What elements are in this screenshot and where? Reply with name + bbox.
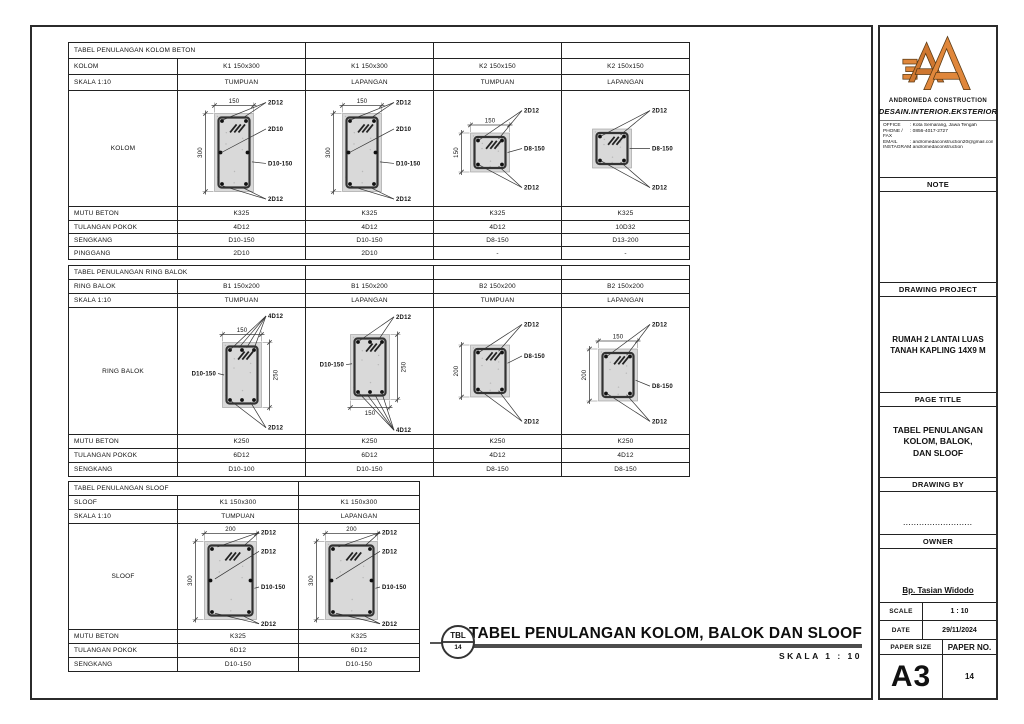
- svg-text:2D12: 2D12: [652, 109, 668, 115]
- svg-text:2D12: 2D12: [382, 549, 398, 555]
- contact-value: : andromedaconstruction: [910, 145, 993, 151]
- section-diagram: 2002D12D8-1502D12: [434, 308, 561, 434]
- svg-text:150: 150: [237, 328, 248, 334]
- table-cell: K325: [177, 630, 298, 643]
- table-cell: B1 150x200: [177, 280, 305, 293]
- table-cell: [305, 43, 433, 58]
- table-cell: TUMPUAN: [177, 510, 298, 523]
- table-header-row: SKALA 1:10 TUMPUAN LAPANGAN TUMPUAN LAPA…: [69, 74, 689, 90]
- table-cell: K325: [305, 207, 433, 220]
- badge-code: TBL: [443, 627, 473, 641]
- section-diagram: 2501502D12D10-1504D12: [306, 308, 433, 434]
- svg-text:2D10: 2D10: [396, 127, 412, 133]
- svg-text:2D12: 2D12: [396, 197, 412, 203]
- table-cell: K325: [561, 207, 689, 220]
- contact-label: INSTAGRAM: [883, 145, 910, 151]
- svg-text:D10-150: D10-150: [320, 363, 345, 369]
- svg-text:150: 150: [613, 335, 624, 341]
- table-title-row: TABEL PENULANGAN RING BALOK: [69, 266, 689, 279]
- svg-text:250: 250: [402, 361, 408, 372]
- spec-row: TULANGAN POKOK 6D12 6D12 4D12 4D12: [69, 448, 689, 462]
- project-name: RUMAH 2 LANTAI LUAS TANAH KAPLING 14X9 M: [880, 297, 996, 392]
- note-body: [880, 192, 996, 282]
- table-cell: TUMPUAN: [433, 294, 561, 307]
- table-cell: K1 150x300: [177, 59, 305, 74]
- table-cell: -: [561, 247, 689, 259]
- svg-text:150: 150: [357, 99, 368, 105]
- owner-name: Bp. Tasian Widodo: [902, 586, 973, 595]
- title-underline-bar: [468, 644, 862, 648]
- svg-text:2D12: 2D12: [268, 426, 284, 432]
- svg-text:300: 300: [309, 575, 315, 586]
- page-title-line: KOLOM, BALOK,: [904, 436, 973, 448]
- table-cell: TUMPUAN: [177, 75, 305, 90]
- table-cell: D10-150: [305, 234, 433, 246]
- row-label: KOLOM: [69, 59, 177, 74]
- diagram-row: KOLOM 1503002D122D10D10-1502D12 1503002D…: [69, 90, 689, 206]
- table-cell: 1502504D12D10-1502D12: [177, 308, 305, 434]
- brand-name: ANDROMEDA CONSTRUCTION: [889, 98, 987, 104]
- table-cell: 4D12: [177, 221, 305, 233]
- table-cell: D10-100: [177, 463, 305, 476]
- svg-text:2D12: 2D12: [268, 101, 284, 107]
- table-cell: 1503002D122D10D10-1502D12: [177, 91, 305, 206]
- andromeda-logo-icon: [900, 32, 976, 96]
- table-cell: K1 150x300: [177, 496, 298, 509]
- table-cell: 2D12D8-1502D12: [561, 91, 689, 206]
- spec-row: MUTU BETON K325 K325 K325 K325: [69, 206, 689, 220]
- table-cell: D8-150: [561, 463, 689, 476]
- svg-text:2D12: 2D12: [524, 322, 540, 328]
- svg-text:2D12: 2D12: [652, 419, 668, 425]
- signature-dots: ..........................: [903, 521, 972, 527]
- table-cell: 10D32: [561, 221, 689, 233]
- section-diagram: 1503002D122D10D10-1502D12: [306, 91, 433, 206]
- title-block: ANDROMEDA CONSTRUCTION DESAIN.INTERIOR.E…: [878, 25, 998, 700]
- row-label: RING BALOK: [69, 280, 177, 293]
- table-title: TABEL PENULANGAN RING BALOK: [69, 266, 305, 279]
- table-header-row: RING BALOK B1 150x200 B1 150x200 B2 150x…: [69, 279, 689, 293]
- svg-text:D10-150: D10-150: [268, 161, 293, 167]
- table-cell: K1 150x300: [305, 59, 433, 74]
- svg-text:250: 250: [274, 369, 280, 380]
- table-cell: K2 150x150: [561, 59, 689, 74]
- spec-row: SENGKANG D10-150 D10-150: [69, 657, 419, 671]
- row-label: SLOOF: [69, 524, 177, 629]
- table-cell: K250: [177, 435, 305, 448]
- project-line: TANAH KAPLING 14X9 M: [890, 345, 985, 356]
- svg-text:200: 200: [346, 527, 357, 533]
- svg-text:200: 200: [454, 365, 460, 376]
- brand-tagline: DESAIN.INTERIOR.EKSTERIOR: [879, 107, 998, 116]
- paper-size-label: PAPER SIZE: [880, 640, 942, 654]
- date-label: DATE: [880, 621, 922, 639]
- scale-row: SCALE 1 : 10: [880, 602, 996, 620]
- row-label: TULANGAN POKOK: [69, 449, 177, 462]
- drawing-project-header: DRAWING PROJECT: [880, 282, 996, 297]
- row-label: TULANGAN POKOK: [69, 644, 177, 657]
- table-cell: K325: [177, 207, 305, 220]
- row-label: RING BALOK: [69, 308, 177, 434]
- svg-text:2D12: 2D12: [261, 622, 277, 628]
- table-cell: 2003002D122D12D10-1502D12: [177, 524, 298, 629]
- row-label: PINGGANG: [69, 247, 177, 259]
- svg-text:2D10: 2D10: [268, 127, 284, 133]
- table-cell: B2 150x200: [433, 280, 561, 293]
- svg-text:150: 150: [485, 119, 496, 125]
- table-cell: D8-150: [433, 234, 561, 246]
- table-cell: LAPANGAN: [305, 75, 433, 90]
- row-label: SENGKANG: [69, 463, 177, 476]
- table-cell: [561, 43, 689, 58]
- table-header-row: SKALA 1:10 TUMPUAN LAPANGAN: [69, 509, 419, 523]
- table-sloof: TABEL PENULANGAN SLOOF SLOOF K1 150x300 …: [68, 481, 420, 672]
- table-cell: K250: [561, 435, 689, 448]
- table-kolom-beton: TABEL PENULANGAN KOLOM BETON KOLOM K1 15…: [68, 42, 690, 260]
- table-cell: 4D12: [305, 221, 433, 233]
- table-cell: D10-150: [177, 658, 298, 671]
- table-cell: 2003002D122D12D10-1502D12: [298, 524, 419, 629]
- row-label: MUTU BETON: [69, 207, 177, 220]
- svg-text:2D12: 2D12: [524, 186, 540, 192]
- svg-text:4D12: 4D12: [396, 428, 412, 434]
- table-cell: 2501502D12D10-1504D12: [305, 308, 433, 434]
- table-cell: D10-150: [298, 658, 419, 671]
- diagram-row: SLOOF 2003002D122D12D10-1502D12 2003002D…: [69, 523, 419, 629]
- table-title: TABEL PENULANGAN SLOOF: [69, 482, 298, 495]
- table-cell: LAPANGAN: [298, 510, 419, 523]
- row-label: KOLOM: [69, 91, 177, 206]
- section-diagram: 1502504D12D10-1502D12: [178, 308, 305, 434]
- table-cell: 4D12: [561, 449, 689, 462]
- svg-text:2D12: 2D12: [524, 109, 540, 115]
- table-cell: LAPANGAN: [305, 294, 433, 307]
- table-cell: [298, 482, 419, 495]
- scale-label: SCALE: [880, 603, 922, 620]
- table-cell: D13-200: [561, 234, 689, 246]
- section-diagram: 1503002D122D10D10-1502D12: [178, 91, 305, 206]
- table-cell: TUMPUAN: [433, 75, 561, 90]
- svg-text:2D12: 2D12: [396, 101, 412, 107]
- section-diagram: 1501502D12D8-1502D12: [434, 91, 561, 206]
- spec-row: SENGKANG D10-100 D10-150 D8-150 D8-150: [69, 462, 689, 476]
- sheet-number-badge: TBL 14: [441, 625, 475, 659]
- table-cell: 6D12: [298, 644, 419, 657]
- table-cell: B2 150x200: [561, 280, 689, 293]
- section-diagram: 1502002D12D8-1502D12: [562, 308, 689, 434]
- paper-size-value: A3: [880, 655, 942, 698]
- svg-text:300: 300: [188, 575, 194, 586]
- svg-text:4D12: 4D12: [268, 314, 284, 320]
- drawing-by-header: DRAWING BY: [880, 477, 996, 492]
- svg-text:150: 150: [454, 147, 460, 158]
- table-cell: 1502002D12D8-1502D12: [561, 308, 689, 434]
- svg-text:2D12: 2D12: [524, 419, 540, 425]
- table-cell: 1503002D122D10D10-1502D12: [305, 91, 433, 206]
- owner-header: OWNER: [880, 534, 996, 549]
- svg-text:2D12: 2D12: [382, 622, 398, 628]
- table-cell: B1 150x200: [305, 280, 433, 293]
- table-header-row: SLOOF K1 150x300 K1 150x300: [69, 495, 419, 509]
- owner-body: Bp. Tasian Widodo: [880, 549, 996, 602]
- paper-no-value: 14: [942, 655, 996, 698]
- page-title-header: PAGE TITLE: [880, 392, 996, 407]
- section-diagram: 2D12D8-1502D12: [562, 91, 689, 206]
- contact-label: PHONE / FAX: [883, 129, 910, 140]
- table-header-row: KOLOM K1 150x300 K1 150x300 K2 150x150 K…: [69, 58, 689, 74]
- row-label: SKALA 1:10: [69, 510, 177, 523]
- svg-text:D8-150: D8-150: [524, 147, 545, 153]
- page-title-body: TABEL PENULANGAN KOLOM, BALOK, DAN SLOOF: [880, 407, 996, 477]
- drawing-by-body: ..........................: [880, 492, 996, 534]
- sheet-title: TABEL PENULANGAN KOLOM, BALOK DAN SLOOF: [469, 625, 862, 643]
- contact-value: : 0856-4017-2727: [910, 129, 993, 140]
- page-title-line: TABEL PENULANGAN: [893, 425, 983, 437]
- table-cell: [305, 266, 433, 279]
- note-header: NOTE: [880, 177, 996, 192]
- date-value: 29/11/2024: [922, 621, 996, 639]
- project-line: RUMAH 2 LANTAI LUAS: [892, 334, 983, 345]
- row-label: SENGKANG: [69, 234, 177, 246]
- table-cell: [433, 43, 561, 58]
- paper-value-row: A3 14: [880, 654, 996, 698]
- svg-text:150: 150: [365, 411, 376, 417]
- row-label: SKALA 1:10: [69, 75, 177, 90]
- spec-row: SENGKANG D10-150 D10-150 D8-150 D13-200: [69, 233, 689, 246]
- spec-row: TULANGAN POKOK 4D12 4D12 4D12 10D32: [69, 220, 689, 233]
- row-label: MUTU BETON: [69, 630, 177, 643]
- page-title-line: DAN SLOOF: [913, 448, 963, 460]
- table-cell: D10-150: [305, 463, 433, 476]
- table-cell: 6D12: [305, 449, 433, 462]
- paper-header-row: PAPER SIZE PAPER NO.: [880, 639, 996, 654]
- svg-text:2D12: 2D12: [261, 530, 277, 536]
- badge-number: 14: [443, 643, 473, 657]
- row-label: SENGKANG: [69, 658, 177, 671]
- svg-text:300: 300: [326, 147, 332, 158]
- table-cell: 4D12: [433, 449, 561, 462]
- table-cell: K250: [305, 435, 433, 448]
- table-cell: D8-150: [433, 463, 561, 476]
- svg-text:D8-150: D8-150: [652, 147, 673, 153]
- svg-text:D8-150: D8-150: [652, 384, 673, 390]
- table-cell: LAPANGAN: [561, 75, 689, 90]
- svg-text:D10-150: D10-150: [396, 161, 421, 167]
- row-label: SLOOF: [69, 496, 177, 509]
- section-diagram: 2003002D122D12D10-1502D12: [178, 524, 298, 629]
- table-cell: K325: [298, 630, 419, 643]
- spec-row: TULANGAN POKOK 6D12 6D12: [69, 643, 419, 657]
- svg-text:2D12: 2D12: [396, 315, 412, 321]
- brand-box: ANDROMEDA CONSTRUCTION DESAIN.INTERIOR.E…: [880, 27, 996, 177]
- table-ring-balok: TABEL PENULANGAN RING BALOK RING BALOK B…: [68, 265, 690, 477]
- diagram-row: RING BALOK 1502504D12D10-1502D12 2501502…: [69, 307, 689, 434]
- table-cell: 2D10: [177, 247, 305, 259]
- svg-text:200: 200: [225, 527, 236, 533]
- table-cell: D10-150: [177, 234, 305, 246]
- table-cell: 2002D12D8-1502D12: [433, 308, 561, 434]
- svg-text:D10-150: D10-150: [261, 585, 286, 591]
- table-cell: K2 150x150: [433, 59, 561, 74]
- sheet-scale: SKALA 1 : 10: [779, 651, 862, 661]
- table-cell: 6D12: [177, 449, 305, 462]
- paper-no-label: PAPER NO.: [942, 640, 996, 654]
- svg-text:2D12: 2D12: [652, 322, 668, 328]
- table-cell: [433, 266, 561, 279]
- scale-value: 1 : 10: [922, 603, 996, 620]
- spec-row: MUTU BETON K250 K250 K250 K250: [69, 434, 689, 448]
- table-title-row: TABEL PENULANGAN KOLOM BETON: [69, 43, 689, 58]
- table-cell: TUMPUAN: [177, 294, 305, 307]
- svg-text:D10-150: D10-150: [382, 585, 407, 591]
- svg-text:D8-150: D8-150: [524, 354, 545, 360]
- table-header-row: SKALA 1:10 TUMPUAN LAPANGAN TUMPUAN LAPA…: [69, 293, 689, 307]
- table-cell: 1501502D12D8-1502D12: [433, 91, 561, 206]
- table-cell: LAPANGAN: [561, 294, 689, 307]
- svg-text:150: 150: [229, 99, 240, 105]
- table-cell: K325: [433, 207, 561, 220]
- table-title-row: TABEL PENULANGAN SLOOF: [69, 482, 419, 495]
- table-cell: 6D12: [177, 644, 298, 657]
- svg-text:2D12: 2D12: [652, 186, 668, 192]
- brand-contacts: OFFICE: Kota Semarang, Jawa Tengah PHONE…: [880, 120, 996, 151]
- date-row: DATE 29/11/2024: [880, 620, 996, 639]
- table-cell: 4D12: [433, 221, 561, 233]
- table-cell: K250: [433, 435, 561, 448]
- table-title: TABEL PENULANGAN KOLOM BETON: [69, 43, 305, 58]
- spec-row: MUTU BETON K325 K325: [69, 629, 419, 643]
- svg-text:2D12: 2D12: [268, 197, 284, 203]
- section-diagram: 2003002D122D12D10-1502D12: [299, 524, 419, 629]
- table-cell: 2D10: [305, 247, 433, 259]
- row-label: TULANGAN POKOK: [69, 221, 177, 233]
- svg-text:300: 300: [198, 147, 204, 158]
- row-label: MUTU BETON: [69, 435, 177, 448]
- table-cell: -: [433, 247, 561, 259]
- table-cell: K1 150x300: [298, 496, 419, 509]
- svg-text:2D12: 2D12: [261, 549, 277, 555]
- svg-text:2D12: 2D12: [382, 530, 398, 536]
- svg-text:D10-150: D10-150: [192, 372, 217, 378]
- row-label: SKALA 1:10: [69, 294, 177, 307]
- table-cell: [561, 266, 689, 279]
- spec-row: PINGGANG 2D10 2D10 - -: [69, 246, 689, 259]
- svg-text:200: 200: [582, 369, 588, 380]
